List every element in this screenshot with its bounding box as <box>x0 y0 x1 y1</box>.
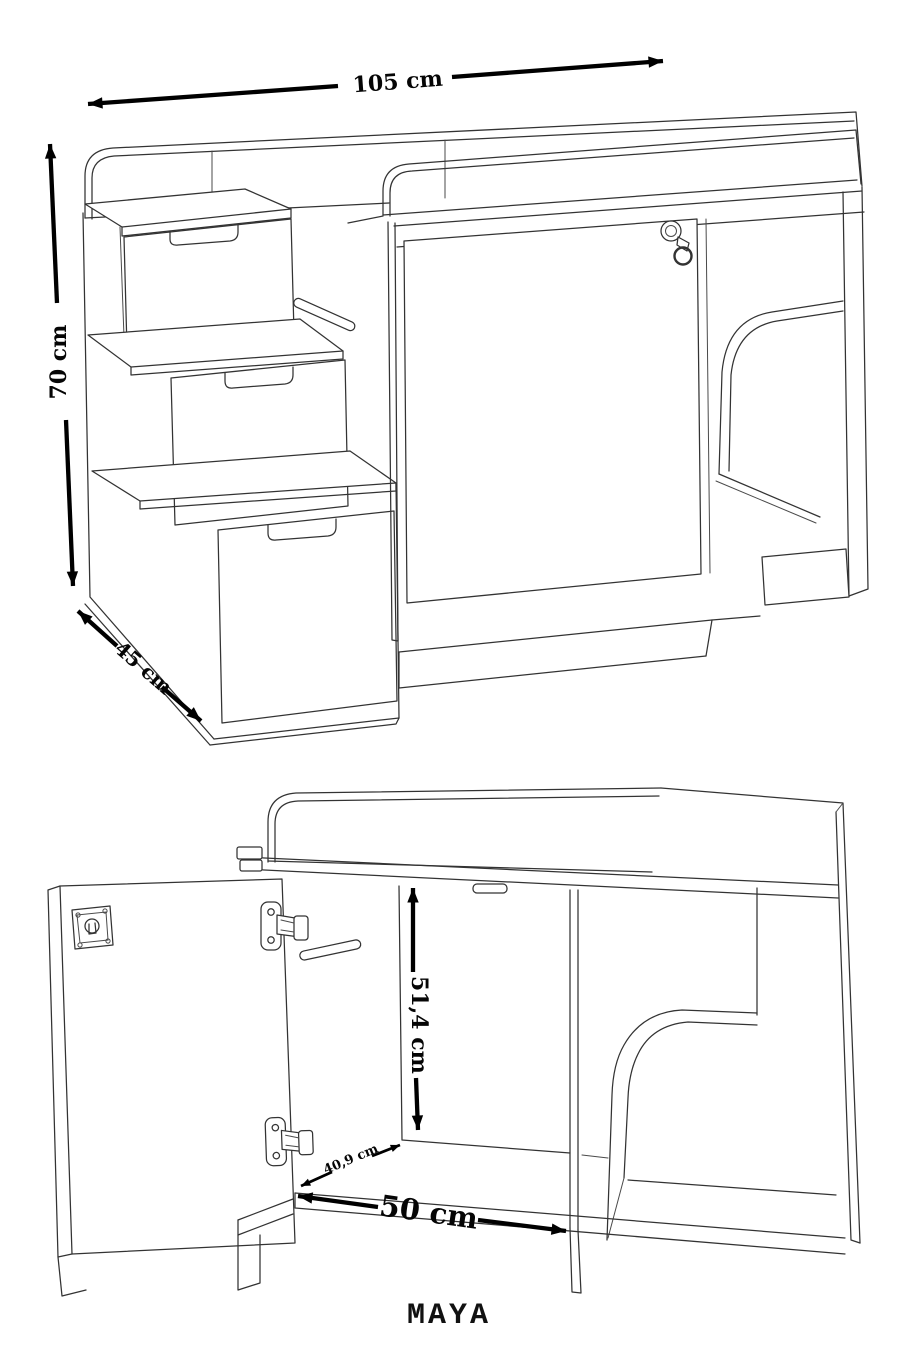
top-handle-notch <box>473 884 507 893</box>
dim-interior-depth: 40,9 cm <box>301 1141 400 1186</box>
top-rail <box>243 788 860 1243</box>
dim-width-105: 105 cm <box>88 61 663 104</box>
dim-interior-height: 51,4 cm <box>406 888 432 1130</box>
diagram-page: 105 cm 70 cm 45 cm <box>0 0 900 1350</box>
dim-interior-height-label: 51,4 cm <box>406 976 432 1074</box>
open-compartment <box>716 187 868 596</box>
dim-interior-depth-label: 40,9 cm <box>321 1141 380 1178</box>
lower-open-view: 51,4 cm 40,9 cm 50 cm <box>48 788 860 1296</box>
dim-interior-width-label: 50 cm <box>378 1188 481 1235</box>
handrail-dowel <box>299 939 362 961</box>
open-door <box>48 847 295 1257</box>
product-name-label: MAYA <box>407 1299 491 1333</box>
dim-height-label: 70 cm <box>46 325 72 400</box>
cabinet-door <box>404 219 710 603</box>
upper-perspective-view: 105 cm 70 cm 45 cm <box>46 61 868 745</box>
furniture-technical-drawing: 105 cm 70 cm 45 cm <box>0 0 900 1350</box>
door-pivot-bracket <box>237 847 262 871</box>
lock-plate <box>72 906 113 949</box>
dim-height-70: 70 cm <box>46 144 73 586</box>
dim-width-label: 105 cm <box>352 66 444 99</box>
dim-depth-label: 45 cm <box>110 636 177 699</box>
curved-divider <box>719 301 843 474</box>
dim-depth-45: 45 cm <box>78 611 201 721</box>
curved-divider <box>607 1010 757 1240</box>
